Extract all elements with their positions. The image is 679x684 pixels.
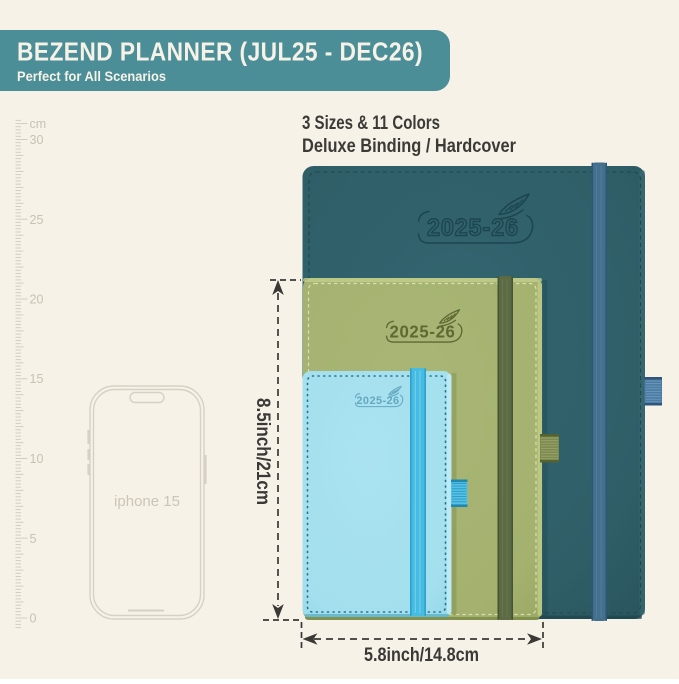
svg-text:Deluxe Binding / Hardcover: Deluxe Binding / Hardcover [302,136,517,157]
svg-text:cm: cm [30,117,47,131]
svg-text:0: 0 [30,612,37,626]
svg-text:2025-26: 2025-26 [427,215,519,242]
svg-text:2025-26: 2025-26 [356,395,399,407]
svg-text:Perfect for All Scenarios: Perfect for All Scenarios [17,68,166,84]
svg-text:5.8inch/14.8cm: 5.8inch/14.8cm [364,645,479,666]
svg-text:20: 20 [30,293,44,307]
svg-text:8.5inch/21cm: 8.5inch/21cm [252,398,273,505]
svg-text:5: 5 [30,532,37,546]
svg-text:2025-26: 2025-26 [390,322,456,342]
svg-text:10: 10 [30,452,44,466]
svg-text:BEZEND PLANNER (JUL25 - DEC26): BEZEND PLANNER (JUL25 - DEC26) [17,37,423,67]
svg-text:3 Sizes & 11 Colors: 3 Sizes & 11 Colors [302,113,440,134]
svg-text:30: 30 [30,133,44,147]
svg-text:25: 25 [30,213,44,227]
svg-text:iphone 15: iphone 15 [114,493,180,510]
svg-text:15: 15 [30,372,44,386]
